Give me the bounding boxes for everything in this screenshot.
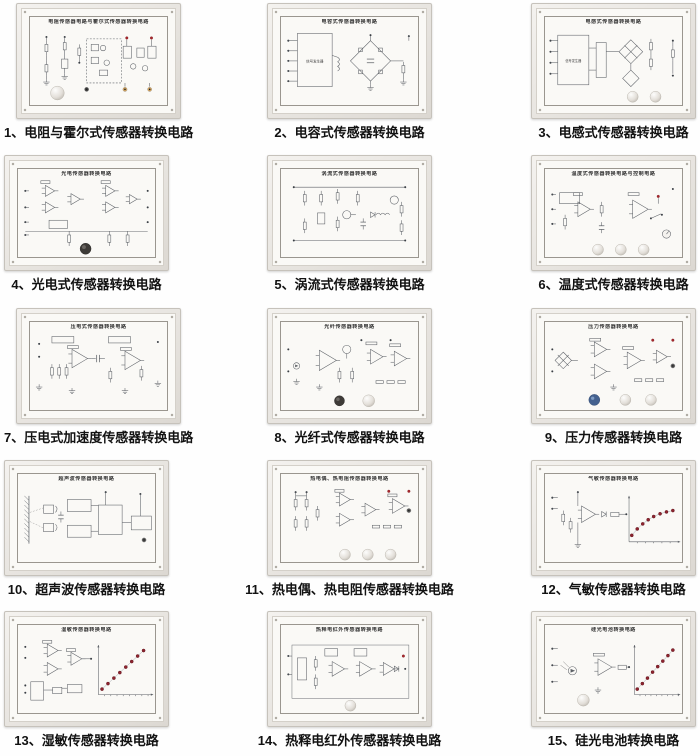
panel-stack: 热释电红外传感器转换电路 14、热释电红外传感器转换电路 <box>258 608 441 748</box>
panel-stack: 电容式传感器转换电路 信号发生器 2、电容式传感器转换电路 <box>267 0 432 140</box>
svg-text:信号发生器: 信号发生器 <box>565 58 582 63</box>
board-title: 热释电红外传感器转换电路 <box>281 627 418 634</box>
panel-stack: 硅光电池转换电路 15、硅光电池转换电路 <box>531 608 696 748</box>
panel-caption: 1、电阻与霍尔式传感器转换电路 <box>4 125 193 140</box>
circuit-board-photo: 电阻传感器电路与霍尔式传感器转换电路 <box>16 3 181 119</box>
panel-stack: 涡流式传感器转换电路 5、涡流式传感器转换电路 <box>267 152 432 292</box>
panel-stack: 压电式传感器转换电路 7、压电式加速度传感器转换电路 <box>4 305 193 445</box>
board-title: 气敏传感器转换电路 <box>545 476 682 483</box>
board-inner-frame: 光电传感器转换电路 <box>17 168 156 258</box>
board-title: 电感式传感器转换电路 <box>545 19 682 26</box>
board-title: 电容式传感器转换电路 <box>281 19 418 26</box>
circuit-board-photo: 压电式传感器转换电路 <box>16 308 181 424</box>
panel-item: 温度式传感器转换电路与控制电路 6、温度式传感器转换电路 <box>466 152 700 305</box>
panel-item: 超声波传感器转换电路 10、超声波传感器转换电路 <box>0 457 233 608</box>
circuit-board-photo: 光纤传感器转换电路 <box>267 308 432 424</box>
panel-caption: 14、热释电红外传感器转换电路 <box>258 733 441 748</box>
panel-caption: 12、气敏传感器转换电路 <box>541 582 685 597</box>
board-title: 压力传感器转换电路 <box>545 324 682 331</box>
schematic-drawing <box>281 634 418 713</box>
schematic-drawing <box>18 483 155 562</box>
panel-caption: 7、压电式加速度传感器转换电路 <box>4 430 193 445</box>
circuit-board-photo: 电容式传感器转换电路 信号发生器 <box>267 3 432 119</box>
panel-caption: 15、硅光电池转换电路 <box>548 733 679 748</box>
panel-item: 压力传感器转换电路 9、压力传感器转换电路 <box>466 305 700 457</box>
schematic-drawing: 信号发生器 <box>545 26 682 105</box>
panel-item: 电阻传感器电路与霍尔式传感器转换电路 1、电阻与霍尔式传感器转换电路 <box>0 0 233 152</box>
panel-caption: 11、热电偶、热电阻传感器转换电路 <box>245 582 454 597</box>
circuit-board-photo: 湿敏传感器转换电路 <box>4 611 169 727</box>
catalog-page: 电阻传感器电路与霍尔式传感器转换电路 1、电阻与霍尔式传感器转换电路 电容式传感… <box>0 0 700 756</box>
panel-caption: 6、温度式传感器转换电路 <box>538 277 688 292</box>
board-inner-frame: 光纤传感器转换电路 <box>280 321 419 411</box>
panel-stack: 温度式传感器转换电路与控制电路 6、温度式传感器转换电路 <box>531 152 696 292</box>
board-inner-frame: 温度式传感器转换电路与控制电路 <box>544 168 683 258</box>
circuit-board-photo: 气敏传感器转换电路 <box>531 460 696 576</box>
board-title: 湿敏传感器转换电路 <box>18 627 155 634</box>
board-inner-frame: 电容式传感器转换电路 信号发生器 <box>280 16 419 106</box>
board-face: 压力传感器转换电路 <box>536 313 691 419</box>
board-face: 涡流式传感器转换电路 <box>272 160 427 266</box>
panel-caption: 10、超声波传感器转换电路 <box>8 582 165 597</box>
board-inner-frame: 超声波传感器转换电路 <box>17 473 156 563</box>
board-inner-frame: 电感式传感器转换电路 信号发生器 <box>544 16 683 106</box>
board-inner-frame: 气敏传感器转换电路 <box>544 473 683 563</box>
board-title: 超声波传感器转换电路 <box>18 476 155 483</box>
board-inner-frame: 热释电红外传感器转换电路 <box>280 624 419 714</box>
panel-item: 光纤传感器转换电路 8、光纤式传感器转换电路 <box>233 305 466 457</box>
schematic-drawing: 信号发生器 <box>281 26 418 105</box>
board-face: 热释电红外传感器转换电路 <box>272 616 427 722</box>
panel-stack: 光纤传感器转换电路 8、光纤式传感器转换电路 <box>267 305 432 445</box>
board-inner-frame: 涡流式传感器转换电路 <box>280 168 419 258</box>
board-title: 压电式传感器转换电路 <box>30 324 167 331</box>
board-title: 涡流式传感器转换电路 <box>281 171 418 178</box>
board-inner-frame: 电阻传感器电路与霍尔式传感器转换电路 <box>29 16 168 106</box>
board-face: 湿敏传感器转换电路 <box>9 616 164 722</box>
schematic-drawing <box>18 634 155 713</box>
panel-item: 电感式传感器转换电路 信号发生器 3、电感式传感器转换电路 <box>466 0 700 152</box>
panel-stack: 湿敏传感器转换电路 13、湿敏传感器转换电路 <box>4 608 169 748</box>
board-face: 温度式传感器转换电路与控制电路 <box>536 160 691 266</box>
board-face: 光纤传感器转换电路 <box>272 313 427 419</box>
panel-item: 热电偶、热电阻传感器转换电路 11、热电偶、热电阻传感器转换电路 <box>233 457 466 608</box>
circuit-board-photo: 热释电红外传感器转换电路 <box>267 611 432 727</box>
board-title: 电阻传感器电路与霍尔式传感器转换电路 <box>30 19 167 26</box>
board-inner-frame: 硅光电池转换电路 <box>544 624 683 714</box>
schematic-drawing <box>30 331 167 410</box>
board-face: 超声波传感器转换电路 <box>9 465 164 571</box>
circuit-board-photo: 涡流式传感器转换电路 <box>267 155 432 271</box>
panel-item: 压电式传感器转换电路 7、压电式加速度传感器转换电路 <box>0 305 233 457</box>
panel-caption: 8、光纤式传感器转换电路 <box>274 430 424 445</box>
schematic-drawing <box>281 178 418 257</box>
circuit-board-photo: 电感式传感器转换电路 信号发生器 <box>531 3 696 119</box>
board-title: 硅光电池转换电路 <box>545 627 682 634</box>
board-inner-frame: 压力传感器转换电路 <box>544 321 683 411</box>
board-title: 温度式传感器转换电路与控制电路 <box>545 171 682 178</box>
board-face: 气敏传感器转换电路 <box>536 465 691 571</box>
panel-caption: 2、电容式传感器转换电路 <box>274 125 424 140</box>
panel-item: 光电传感器转换电路 4、光电式传感器转换电路 <box>0 152 233 305</box>
board-title: 光电传感器转换电路 <box>18 171 155 178</box>
panel-stack: 光电传感器转换电路 4、光电式传感器转换电路 <box>4 152 169 292</box>
schematic-drawing <box>545 178 682 257</box>
panel-caption: 4、光电式传感器转换电路 <box>11 277 161 292</box>
circuit-board-photo: 温度式传感器转换电路与控制电路 <box>531 155 696 271</box>
circuit-board-photo: 热电偶、热电阻传感器转换电路 <box>267 460 432 576</box>
svg-text:信号发生器: 信号发生器 <box>306 59 324 64</box>
panel-caption: 3、电感式传感器转换电路 <box>538 125 688 140</box>
schematic-drawing <box>545 634 682 713</box>
panel-item: 气敏传感器转换电路 12、气敏传感器转换电路 <box>466 457 700 608</box>
panel-caption: 9、压力传感器转换电路 <box>545 430 682 445</box>
schematic-drawing <box>18 178 155 257</box>
schematic-drawing <box>30 26 167 105</box>
board-face: 电阻传感器电路与霍尔式传感器转换电路 <box>21 8 176 114</box>
panel-stack: 电感式传感器转换电路 信号发生器 3、电感式传感器转换电路 <box>531 0 696 140</box>
circuit-board-photo: 光电传感器转换电路 <box>4 155 169 271</box>
schematic-drawing <box>281 331 418 410</box>
schematic-drawing <box>281 483 418 562</box>
panel-stack: 气敏传感器转换电路 12、气敏传感器转换电路 <box>531 457 696 597</box>
board-inner-frame: 热电偶、热电阻传感器转换电路 <box>280 473 419 563</box>
panel-item: 涡流式传感器转换电路 5、涡流式传感器转换电路 <box>233 152 466 305</box>
board-face: 压电式传感器转换电路 <box>21 313 176 419</box>
panel-item: 热释电红外传感器转换电路 14、热释电红外传感器转换电路 <box>233 608 466 756</box>
catalog-grid: 电阻传感器电路与霍尔式传感器转换电路 1、电阻与霍尔式传感器转换电路 电容式传感… <box>0 0 700 756</box>
panel-stack: 超声波传感器转换电路 10、超声波传感器转换电路 <box>4 457 169 597</box>
panel-caption: 5、涡流式传感器转换电路 <box>274 277 424 292</box>
panel-stack: 电阻传感器电路与霍尔式传感器转换电路 1、电阻与霍尔式传感器转换电路 <box>4 0 193 140</box>
panel-stack: 压力传感器转换电路 9、压力传感器转换电路 <box>531 305 696 445</box>
board-face: 热电偶、热电阻传感器转换电路 <box>272 465 427 571</box>
circuit-board-photo: 超声波传感器转换电路 <box>4 460 169 576</box>
circuit-board-photo: 压力传感器转换电路 <box>531 308 696 424</box>
schematic-drawing <box>545 483 682 562</box>
panel-item: 电容式传感器转换电路 信号发生器 2、电容式传感器转换电路 <box>233 0 466 152</box>
panel-stack: 热电偶、热电阻传感器转换电路 11、热电偶、热电阻传感器转换电路 <box>245 457 454 597</box>
board-face: 电容式传感器转换电路 信号发生器 <box>272 8 427 114</box>
schematic-drawing <box>545 331 682 410</box>
board-inner-frame: 压电式传感器转换电路 <box>29 321 168 411</box>
board-inner-frame: 湿敏传感器转换电路 <box>17 624 156 714</box>
panel-item: 湿敏传感器转换电路 13、湿敏传感器转换电路 <box>0 608 233 756</box>
board-face: 电感式传感器转换电路 信号发生器 <box>536 8 691 114</box>
circuit-board-photo: 硅光电池转换电路 <box>531 611 696 727</box>
board-face: 光电传感器转换电路 <box>9 160 164 266</box>
board-title: 光纤传感器转换电路 <box>281 324 418 331</box>
panel-caption: 13、湿敏传感器转换电路 <box>14 733 158 748</box>
panel-item: 硅光电池转换电路 15、硅光电池转换电路 <box>466 608 700 756</box>
board-face: 硅光电池转换电路 <box>536 616 691 722</box>
board-title: 热电偶、热电阻传感器转换电路 <box>281 476 418 483</box>
